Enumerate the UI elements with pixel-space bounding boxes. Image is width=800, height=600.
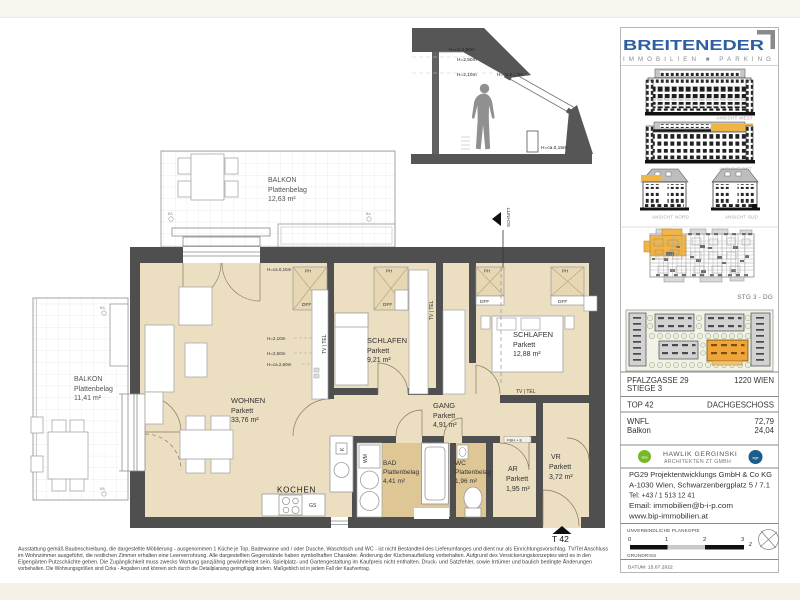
svg-text:DFF: DFF <box>383 302 392 308</box>
svg-text:Email: immobilien@b-i-p.com: Email: immobilien@b-i-p.com <box>629 503 733 510</box>
svg-text:SCHLAFEN: SCHLAFEN <box>513 330 553 339</box>
svg-text:SCHNITT: SCHNITT <box>506 207 511 227</box>
svg-text:Plattenbelag: Plattenbelag <box>455 469 492 476</box>
svg-text:H=ca.2,13m: H=ca.2,13m <box>497 72 523 78</box>
svg-text:H=2,50m: H=2,50m <box>457 57 477 63</box>
svg-text:BAD: BAD <box>383 460 397 467</box>
svg-text:12,63 m²: 12,63 m² <box>268 196 296 203</box>
svg-text:ANSICHT WEST: ANSICHT WEST <box>716 116 753 121</box>
svg-text:BALKON: BALKON <box>74 376 102 383</box>
svg-text:DFF: DFF <box>480 299 489 305</box>
svg-text:H=ca.0,15m: H=ca.0,15m <box>541 145 567 151</box>
svg-text:Plattenbelag: Plattenbelag <box>268 187 307 194</box>
svg-text:WOHNEN: WOHNEN <box>231 396 265 405</box>
svg-text:T 42: T 42 <box>552 534 569 544</box>
svg-text:KOCHEN: KOCHEN <box>277 486 316 495</box>
svg-text:TV | TEL: TV | TEL <box>516 389 536 395</box>
svg-text:VR: VR <box>551 454 561 461</box>
svg-text:3,72 m²: 3,72 m² <box>549 474 573 481</box>
svg-text:BREITENEDER: BREITENEDER <box>623 37 764 54</box>
svg-text:Parkett: Parkett <box>231 408 253 415</box>
svg-text:Parkett: Parkett <box>513 342 535 349</box>
svg-text:12,88 m²: 12,88 m² <box>513 351 541 358</box>
svg-text:im Wohnzimmer ausgeführt, die: im Wohnzimmer ausgeführt, die restlichen… <box>18 552 591 559</box>
svg-text:4,91 m²: 4,91 m² <box>433 422 457 429</box>
svg-text:GRUNDRISS: GRUNDRISS <box>627 553 656 558</box>
svg-text:1220 WIEN: 1220 WIEN <box>734 376 774 385</box>
svg-text:WC: WC <box>455 460 466 467</box>
svg-text:TV | TEL: TV | TEL <box>322 334 328 354</box>
svg-text:BA: BA <box>100 306 105 310</box>
svg-text:aha: aha <box>642 456 648 460</box>
svg-text:Tel: +43 / 1 513 12 41: Tel: +43 / 1 513 12 41 <box>629 493 695 500</box>
svg-text:DFF: DFF <box>558 299 567 305</box>
svg-text:A-1030 Wien, Schwarzenbergplat: A-1030 Wien, Schwarzenbergplatz 5 / 7.1 <box>629 483 770 490</box>
svg-text:z: z <box>748 542 752 548</box>
svg-text:UNVERBINDLICHE PLANKOPIE: UNVERBINDLICHE PLANKOPIE <box>627 528 700 533</box>
svg-text:PH: PH <box>305 269 311 274</box>
svg-text:FBH + E: FBH + E <box>507 438 523 443</box>
svg-text:1: 1 <box>665 537 668 543</box>
svg-text:PH: PH <box>484 269 490 274</box>
svg-text:9,21 m²: 9,21 m² <box>367 357 391 364</box>
svg-text:STIEGE 3: STIEGE 3 <box>627 384 662 393</box>
svg-text:STG 3 - DG: STG 3 - DG <box>737 294 773 301</box>
svg-text:11,41 m²: 11,41 m² <box>74 395 102 402</box>
svg-text:GS: GS <box>309 503 317 509</box>
svg-text:PH: PH <box>562 269 568 274</box>
svg-text:1,96 m²: 1,96 m² <box>455 478 478 485</box>
svg-text:DACHGESCHOSS: DACHGESCHOSS <box>707 401 774 410</box>
svg-text:Eigengärten Putzschächte geben: Eigengärten Putzschächte geben. Die Zugä… <box>18 559 592 566</box>
svg-text:AR: AR <box>508 466 518 473</box>
svg-text:TOP 42: TOP 42 <box>627 401 654 410</box>
svg-text:HAWLIK GERGINSKI: HAWLIK GERGINSKI <box>663 451 737 458</box>
svg-text:3: 3 <box>741 537 744 543</box>
svg-text:24,04: 24,04 <box>754 426 774 435</box>
svg-text:72,79: 72,79 <box>754 417 774 426</box>
svg-text:H=2,10m: H=2,10m <box>457 72 477 78</box>
svg-text:H=2,50m: H=2,50m <box>267 351 286 356</box>
svg-text:ANSICHT SUD: ANSICHT SUD <box>725 215 758 220</box>
svg-text:DATUM: 15.07.2022: DATUM: 15.07.2022 <box>628 565 673 570</box>
svg-text:Parkett: Parkett <box>549 464 571 471</box>
svg-text:PG29 Projektentwicklungs GmbH: PG29 Projektentwicklungs GmbH & Co KG <box>629 472 772 479</box>
svg-text:Parkett: Parkett <box>367 348 389 355</box>
svg-text:33,76 m²: 33,76 m² <box>231 417 259 424</box>
svg-text:H=ca.0,15m: H=ca.0,15m <box>267 267 292 272</box>
svg-text:WNFL: WNFL <box>627 417 650 426</box>
svg-text:Plattenbelag: Plattenbelag <box>383 469 420 476</box>
svg-text:Plattenbelag: Plattenbelag <box>74 386 113 393</box>
svg-text:H=2,10m: H=2,10m <box>267 336 286 341</box>
svg-text:ege: ege <box>753 456 759 460</box>
svg-text:PH: PH <box>386 269 392 274</box>
svg-text:DFF: DFF <box>302 302 311 308</box>
svg-text:GANG: GANG <box>433 401 455 410</box>
svg-text:BALKON: BALKON <box>268 177 296 184</box>
svg-text:H=ca.2,90m: H=ca.2,90m <box>449 47 475 53</box>
svg-text:www.bip-immobilien.at: www.bip-immobilien.at <box>628 514 708 521</box>
svg-text:Parkett: Parkett <box>433 413 455 420</box>
svg-text:SCHLAFEN: SCHLAFEN <box>367 336 407 345</box>
svg-text:2: 2 <box>703 537 706 543</box>
svg-text:vorbehalten. Die Wohnungsgröße: vorbehalten. Die Wohnungsgrößen sind Cir… <box>18 566 370 572</box>
svg-text:BA: BA <box>100 487 105 491</box>
svg-text:H=ca.2,60m: H=ca.2,60m <box>267 362 292 367</box>
svg-text:TV | TEL: TV | TEL <box>429 300 435 320</box>
svg-text:ARCHITEKTEN ZT GMBH: ARCHITEKTEN ZT GMBH <box>664 459 731 465</box>
svg-text:1,95 m²: 1,95 m² <box>506 486 530 493</box>
svg-text:BA: BA <box>168 212 173 216</box>
svg-text:WM: WM <box>363 454 369 463</box>
svg-text:0: 0 <box>628 537 631 543</box>
svg-text:BA: BA <box>366 212 371 216</box>
svg-text:4,41 m²: 4,41 m² <box>383 478 406 485</box>
svg-text:Balkon: Balkon <box>627 426 651 435</box>
svg-text:Parkett: Parkett <box>506 476 528 483</box>
svg-text:ANSICHT NORD: ANSICHT NORD <box>652 215 689 220</box>
svg-text:Ausstattung gemäß Baubeschreib: Ausstattung gemäß Baubeschreibung, die d… <box>18 547 608 553</box>
